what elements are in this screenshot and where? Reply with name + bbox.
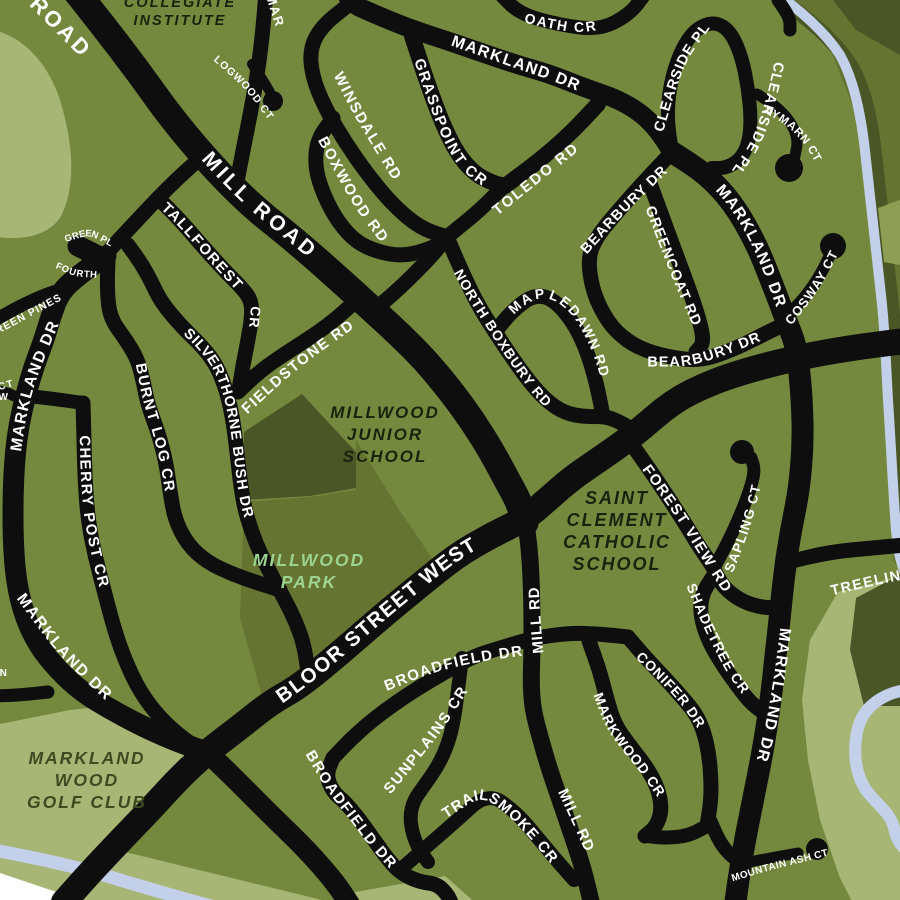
svg-text:MARKLAND: MARKLAND bbox=[28, 748, 145, 768]
svg-text:N: N bbox=[0, 668, 8, 679]
svg-text:CR: CR bbox=[246, 306, 264, 330]
svg-text:MILLWOOD: MILLWOOD bbox=[253, 550, 365, 570]
svg-text:PARK: PARK bbox=[281, 572, 337, 592]
svg-text:W: W bbox=[0, 392, 9, 403]
svg-text:GOLF CLUB: GOLF CLUB bbox=[27, 792, 147, 812]
svg-text:COLLEGIATE: COLLEGIATE bbox=[124, 0, 236, 11]
svg-text:CLEMENT: CLEMENT bbox=[567, 510, 668, 530]
svg-text:MILLWOOD: MILLWOOD bbox=[330, 403, 439, 422]
svg-text:SAINT: SAINT bbox=[585, 488, 649, 508]
svg-text:WOOD: WOOD bbox=[55, 770, 119, 790]
svg-text:SCHOOL: SCHOOL bbox=[343, 447, 428, 466]
svg-text:INSTITUTE: INSTITUTE bbox=[134, 13, 227, 29]
svg-text:JUNIOR: JUNIOR bbox=[347, 425, 423, 444]
svg-text:CATHOLIC: CATHOLIC bbox=[563, 532, 671, 552]
svg-text:SCHOOL: SCHOOL bbox=[572, 554, 661, 574]
